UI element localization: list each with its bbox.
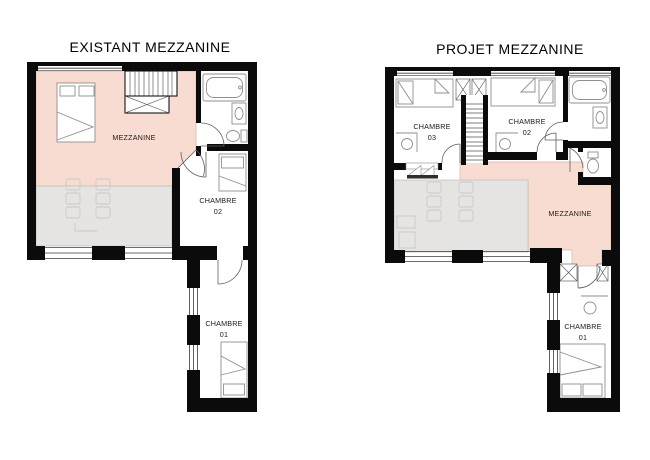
- chambre02-label: CHAMBRE: [508, 117, 545, 126]
- chambre01-bed-symbol: [560, 344, 605, 398]
- chambre01-washbasin-symbol: [581, 296, 608, 314]
- toilet-symbol: [588, 152, 599, 173]
- double-bed-symbol: [57, 83, 95, 142]
- chambre01-wardrobe-symbol: [560, 264, 608, 281]
- void-area: [36, 186, 172, 246]
- bathtub-symbol: [569, 77, 610, 103]
- sink-symbol: [232, 103, 246, 124]
- chambre01-label: CHAMBRE: [205, 319, 242, 328]
- chambre02-washbasin-symbol: [496, 133, 518, 152]
- chambre01-number: 01: [220, 330, 228, 339]
- chambre01-label: CHAMBRE: [564, 322, 601, 331]
- chambre03-label: CHAMBRE: [413, 122, 450, 131]
- chambre01-bed-symbol: [221, 342, 247, 398]
- mezzanine-label: MEZZANINE: [548, 209, 591, 218]
- plan-projet: CHAMBRE 03 CHAMBRE 02 MEZZANINE CHAMBRE …: [325, 0, 650, 460]
- mezzanine-label: MEZZANINE: [112, 133, 155, 142]
- chambre02-bed-symbol: [219, 154, 246, 191]
- chambre03-bed-symbol: [396, 79, 453, 107]
- chambre02-bed-symbol: [491, 78, 555, 106]
- chambre01-number: 01: [579, 333, 587, 342]
- sink-symbol: [593, 107, 607, 128]
- guardrail-window-symbol: [406, 163, 438, 179]
- chambre03-washbasin-symbol: [396, 133, 417, 152]
- floorplan-canvas: EXISTANT MEZZANINE PROJET MEZZANINE: [0, 0, 650, 460]
- chambre02-number: 02: [214, 207, 222, 216]
- stairs-symbol: [125, 71, 177, 113]
- plan-existant: MEZZANINE CHAMBRE 02 CHAMBRE 01: [0, 0, 325, 460]
- stairs-symbol: [456, 79, 486, 163]
- chambre03-number: 03: [428, 133, 436, 142]
- chambre02-label: CHAMBRE: [199, 196, 236, 205]
- chambre02-number: 02: [523, 128, 531, 137]
- toilet-symbol: [227, 130, 248, 142]
- bathtub-symbol: [203, 74, 246, 101]
